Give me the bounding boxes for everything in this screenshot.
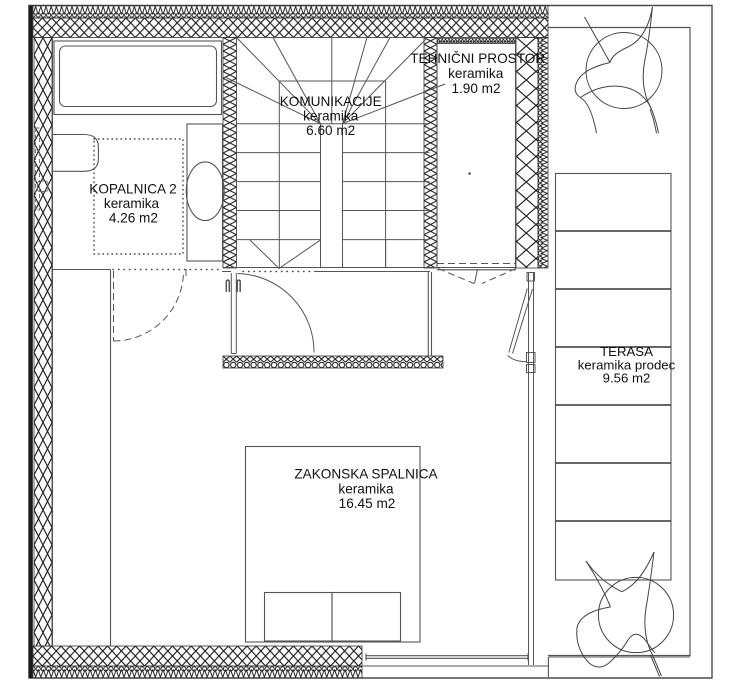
svg-text:9.56 m2: 9.56 m2 [603, 370, 651, 385]
svg-text:keramika: keramika [448, 66, 504, 81]
svg-text:16.45 m2: 16.45 m2 [339, 496, 396, 511]
svg-text:keramika: keramika [303, 109, 359, 124]
svg-text:6.60 m2: 6.60 m2 [306, 123, 355, 138]
svg-text:ZAKONSKA SPALNICA: ZAKONSKA SPALNICA [294, 467, 438, 482]
svg-text:4.26 m2: 4.26 m2 [109, 210, 158, 225]
svg-text:keramika: keramika [338, 481, 394, 496]
svg-text:KOMUNIKACIJE: KOMUNIKACIJE [280, 94, 382, 109]
svg-text:1.90 m2: 1.90 m2 [451, 81, 500, 96]
svg-text:KOPALNICA 2: KOPALNICA 2 [89, 182, 176, 197]
svg-text:TEHNIČNI PROSTOR: TEHNIČNI PROSTOR [410, 51, 545, 66]
svg-text:keramika: keramika [104, 196, 160, 211]
